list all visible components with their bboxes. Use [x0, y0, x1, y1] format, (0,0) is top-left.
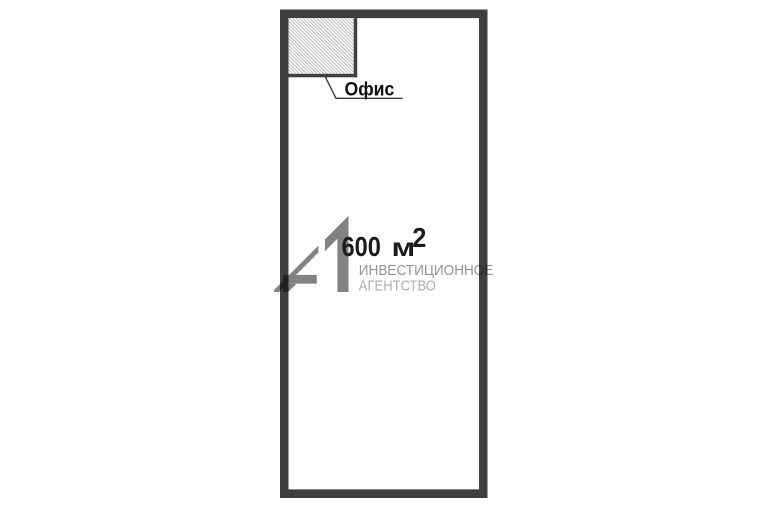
svg-text:АГЕНТСТВО: АГЕНТСТВО [359, 279, 436, 295]
svg-text:ИНВЕСТИЦИОННОЕ: ИНВЕСТИЦИОННОЕ [359, 263, 494, 279]
svg-text:2: 2 [412, 222, 426, 253]
svg-text:600: 600 [342, 231, 381, 262]
svg-text:Офис: Офис [345, 79, 395, 100]
